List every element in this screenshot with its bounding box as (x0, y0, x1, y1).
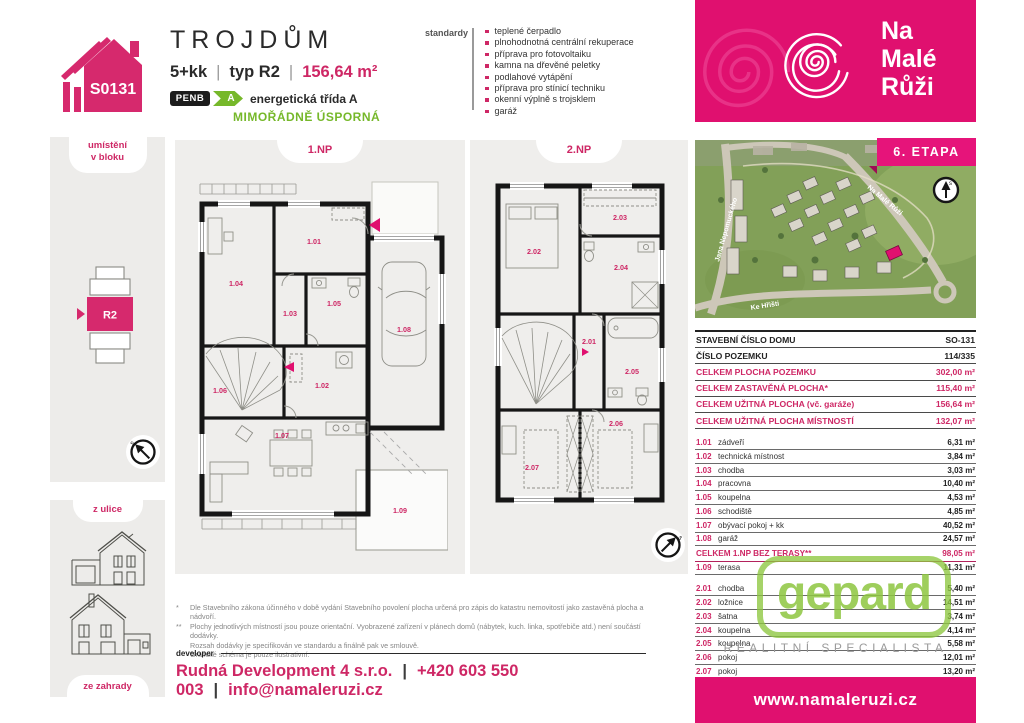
bullet-icon (485, 110, 489, 114)
table-row: STAVEBNÍ ČÍSLO DOMUSO-131 (695, 330, 976, 348)
floorplan-2np-drawing: 2.02 2.03 2.04 2.01 2.05 2.06 2.07 (488, 178, 672, 508)
row-label: CELKEM UŽITNÁ PLOCHA MÍSTNOSTÍ (696, 416, 854, 426)
room-area: 13,20 m² (943, 667, 975, 676)
room-name: pracovna (718, 479, 943, 488)
table-row: CELKEM UŽITNÁ PLOCHA MÍSTNOSTÍ132,07 m² (695, 413, 976, 429)
list-item: příprava pro fotovoltaiku (485, 49, 634, 60)
room-number: 2.03 (696, 612, 718, 621)
list-item: kamna na dřevěné peletky (485, 60, 634, 71)
table-row: ČÍSLO POZEMKU114/335 (695, 348, 976, 364)
sidebar-location-panel: umístění v bloku R2 (50, 137, 165, 482)
site-aerial-map: Jana Nepomuckého Na Malé Růži Ke Hřišti … (695, 140, 976, 318)
penb-row: PENB A energetická třída A (170, 91, 380, 106)
table-row: 1.02technická místnost3,84 m² (695, 450, 976, 464)
site-map-drawing: Jana Nepomuckého Na Malé Růži Ke Hřišti … (695, 140, 976, 318)
room-area: 24,57 m² (943, 534, 975, 543)
separator: | (402, 662, 407, 680)
etapa-banner: 6. ETAPA (877, 138, 976, 166)
room-label: 2.06 (609, 419, 623, 428)
table-row: 1.04pracovna10,40 m² (695, 477, 976, 491)
gepard-logo: gepard (757, 556, 951, 638)
title-block: TROJDŮM 5+kk | typ R2 | 156,64 m² PENB A… (170, 26, 380, 124)
separator: | (216, 63, 220, 82)
footnote-line: Plochy jednotlivých místností jsou pouze… (190, 622, 654, 641)
bullet-icon (485, 98, 489, 102)
compass-icon: s (650, 527, 686, 563)
paving-hatch (202, 519, 356, 529)
row-label: ČÍSLO POZEMKU (696, 351, 768, 361)
room-area: 10,40 m² (943, 479, 975, 488)
table-gap (695, 429, 976, 436)
table-row: 1.03chodba3,03 m² (695, 464, 976, 478)
table-row: CELKEM UŽITNÁ PLOCHA (vč. garáže)156,64 … (695, 397, 976, 413)
room-number: 2.01 (696, 584, 718, 593)
row-value: 302,00 m² (936, 367, 975, 377)
room-area: 5,40 m² (947, 584, 975, 593)
row-value: 156,64 m² (936, 399, 975, 409)
room-area: 6,31 m² (947, 438, 975, 447)
etapa-ribbon-fold (869, 166, 877, 174)
table-row: 1.01zádveří6,31 m² (695, 436, 976, 450)
divider-line (221, 653, 646, 654)
footnote-text: Plochy jednotlivých místností jsou pouze… (190, 622, 654, 650)
bullet-icon (485, 87, 489, 91)
standard-text: garáž (495, 106, 518, 117)
room-number: 1.03 (696, 466, 718, 475)
house-type: typ R2 (229, 63, 279, 82)
contact-line: Rudná Development 4 s.r.o.|+420 603 550 … (176, 662, 686, 700)
room-name: obývací pokoj + kk (718, 521, 943, 530)
footnote: ** Plochy jednotlivých místností jsou po… (176, 622, 654, 650)
garden-elevation-drawing (62, 592, 154, 658)
energy-class-label: energetická třída A (250, 92, 358, 106)
room-number: 1.09 (696, 563, 718, 572)
penb-badge: PENB (170, 91, 210, 106)
room-label: 1.08 (397, 325, 411, 334)
north-letter: s (949, 181, 952, 187)
brand-name: Na Malé Růži (881, 17, 937, 101)
table-row: 1.07obývací pokoj + kk40,52 m² (695, 519, 976, 533)
location-label: umístění v bloku (69, 137, 147, 173)
room-area: 4,53 m² (947, 493, 975, 502)
room-area: 3,74 m² (947, 612, 975, 621)
standard-text: teplené čerpadlo (495, 26, 562, 37)
room-label: 2.04 (614, 263, 628, 272)
disposition: 5+kk (170, 63, 207, 82)
table-row: 1.05koupelna4,53 m² (695, 491, 976, 505)
room-number: 1.08 (696, 534, 718, 543)
room-number: 2.04 (696, 626, 718, 635)
door-arcs (580, 224, 604, 422)
room-number: 1.06 (696, 507, 718, 516)
room-label: 1.02 (315, 381, 329, 390)
flyer-page: S0131 TROJDŮM 5+kk | typ R2 | 156,64 m² … (0, 0, 1024, 723)
room-name: technická místnost (718, 452, 947, 461)
room-name: garáž (718, 534, 943, 543)
standard-text: okenní výplně s trojsklem (495, 94, 596, 105)
standard-text: příprava pro stínicí techniku (495, 83, 606, 94)
list-item: podlahové vytápění (485, 72, 634, 83)
room-label: 1.05 (327, 299, 341, 308)
room-label: 1.07 (275, 431, 289, 440)
brand-line: Růži (881, 73, 937, 101)
row-label: STAVEBNÍ ČÍSLO DOMU (696, 335, 795, 345)
gepard-tagline: REALITNÍ SPECIALISTA (695, 641, 976, 655)
row-label: CELKEM PLOCHA POZEMKU (696, 367, 816, 377)
footnote-marker: ** (176, 622, 190, 650)
row-label: CELKEM ZASTAVĚNÁ PLOCHA* (696, 383, 828, 393)
row-value: 115,40 m² (936, 383, 975, 393)
floor-label: 1.NP (277, 140, 363, 163)
standards-label: standardy (425, 28, 465, 38)
room-area: 40,52 m² (943, 521, 975, 530)
street-elevation-drawing (68, 528, 148, 588)
room-area: 3,84 m² (947, 452, 975, 461)
floor-label: 2.NP (536, 140, 622, 163)
room-number: 2.07 (696, 667, 718, 676)
energy-note: MIMOŘÁDNĚ ÚSPORNÁ (233, 110, 380, 124)
row-value: 114/335 (944, 351, 975, 361)
room-name: zádveří (718, 438, 947, 447)
list-item: příprava pro stínicí techniku (485, 83, 634, 94)
developer-name: Rudná Development 4 s.r.o. (176, 662, 392, 680)
separator: | (214, 681, 219, 699)
room-label: 1.01 (307, 237, 321, 246)
bullet-icon (485, 41, 489, 45)
table-row: CELKEM ZASTAVĚNÁ PLOCHA*115,40 m² (695, 381, 976, 397)
room-number: 1.02 (696, 452, 718, 461)
sidebar-elevations-panel: z ulice (50, 500, 165, 697)
room-label: 1.06 (213, 386, 227, 395)
standard-text: podlahové vytápění (495, 72, 573, 83)
room-number: 1.07 (696, 521, 718, 530)
room-area: 3,03 m² (947, 466, 975, 475)
subtitle: 5+kk | typ R2 | 156,64 m² (170, 63, 380, 82)
compass-icon: s (125, 434, 161, 470)
house-badge: S0131 (50, 24, 156, 116)
furniture (208, 208, 430, 502)
page-title: TROJDŮM (170, 26, 380, 55)
room-label: 2.01 (582, 337, 596, 346)
walls (498, 186, 662, 500)
standard-text: příprava pro fotovoltaiku (495, 49, 592, 60)
row-value: SO-131 (945, 335, 975, 345)
table-row: 1.08garáž24,57 m² (695, 533, 976, 547)
row-value: 98,05 m² (942, 549, 975, 558)
footnote: * Dle Stavebního zákona účinného v době … (176, 603, 654, 622)
room-label: 2.05 (625, 367, 639, 376)
footnote-marker: * (176, 603, 190, 622)
room-area: 4,85 m² (947, 507, 975, 516)
brand-line: Na (881, 17, 937, 45)
compass-icon: s (934, 178, 958, 202)
row-value: 132,07 m² (936, 416, 975, 426)
room-number: 1.05 (696, 493, 718, 502)
room-label: 1.04 (229, 279, 243, 288)
penb-class-badge: A (213, 91, 243, 106)
room-number: 1.04 (696, 479, 718, 488)
unit-label: R2 (103, 310, 117, 322)
table-row: CELKEM PLOCHA POZEMKU302,00 m² (695, 364, 976, 380)
bullet-icon (485, 76, 489, 80)
room-number: 2.02 (696, 598, 718, 607)
developer-label: developer (176, 649, 214, 658)
standards-list: teplené čerpadlo plnohodnotná centrální … (485, 26, 634, 117)
label-line: v bloku (69, 152, 147, 164)
room-name: chodba (718, 466, 947, 475)
standard-text: kamna na dřevěné peletky (495, 60, 601, 71)
walls (202, 204, 442, 514)
total-area: 156,64 m² (302, 63, 377, 82)
room-area: 4,14 m² (947, 626, 975, 635)
row-label: CELKEM UŽITNÁ PLOCHA (vč. garáže) (696, 399, 854, 409)
garden-view-label: ze zahrady (67, 675, 149, 697)
brand-line: Malé (881, 45, 937, 73)
list-item: plnohodnotná centrální rekuperace (485, 37, 634, 48)
dimension-comb (200, 184, 296, 194)
separator: | (289, 63, 293, 82)
room-label: 2.03 (613, 213, 627, 222)
room-label: 2.02 (527, 247, 541, 256)
brand-banner: Na Malé Růži (695, 0, 976, 122)
street-view-label: z ulice (73, 500, 143, 522)
bullet-icon (485, 64, 489, 68)
standard-text: plnohodnotná centrální rekuperace (495, 37, 634, 48)
bullet-icon (485, 53, 489, 57)
room-name: koupelna (718, 493, 947, 502)
house-code: S0131 (90, 81, 136, 98)
room-label: 1.03 (283, 309, 297, 318)
room-label: 2.07 (525, 463, 539, 472)
staircase (206, 337, 286, 410)
table-row: 1.06schodiště4,85 m² (695, 505, 976, 519)
room-label: 1.09 (393, 506, 407, 515)
divider (472, 28, 474, 110)
unit-arrow-icon (77, 308, 85, 320)
block-position-diagram: R2 (75, 263, 141, 369)
staircase (502, 322, 578, 404)
bullet-icon (485, 30, 489, 34)
room-name: pokoj (718, 667, 943, 676)
floorplan-1np-drawing: 1.01 1.04 1.03 1.05 1.02 1.06 1.07 1.08 … (186, 178, 448, 568)
label-line: umístění (69, 140, 147, 152)
footnote-text: Dle Stavebního zákona účinného v době vy… (190, 603, 654, 622)
list-item: garáž (485, 106, 634, 117)
website-bar[interactable]: www.namaleruzi.cz (695, 677, 976, 723)
room-name: schodiště (718, 507, 947, 516)
stairs-arrow-icon (582, 348, 589, 356)
driveway-outline (372, 182, 438, 234)
area-table: STAVEBNÍ ČÍSLO DOMUSO-131 ČÍSLO POZEMKU1… (695, 330, 976, 694)
list-item: okenní výplně s trojsklem (485, 94, 634, 105)
room-number: 1.01 (696, 438, 718, 447)
list-item: teplené čerpadlo (485, 26, 634, 37)
developer-row: developer (176, 649, 646, 658)
room-labels: 2.02 2.03 2.04 2.01 2.05 2.06 2.07 (525, 213, 639, 472)
email-address[interactable]: info@namaleruzi.cz (228, 681, 383, 699)
